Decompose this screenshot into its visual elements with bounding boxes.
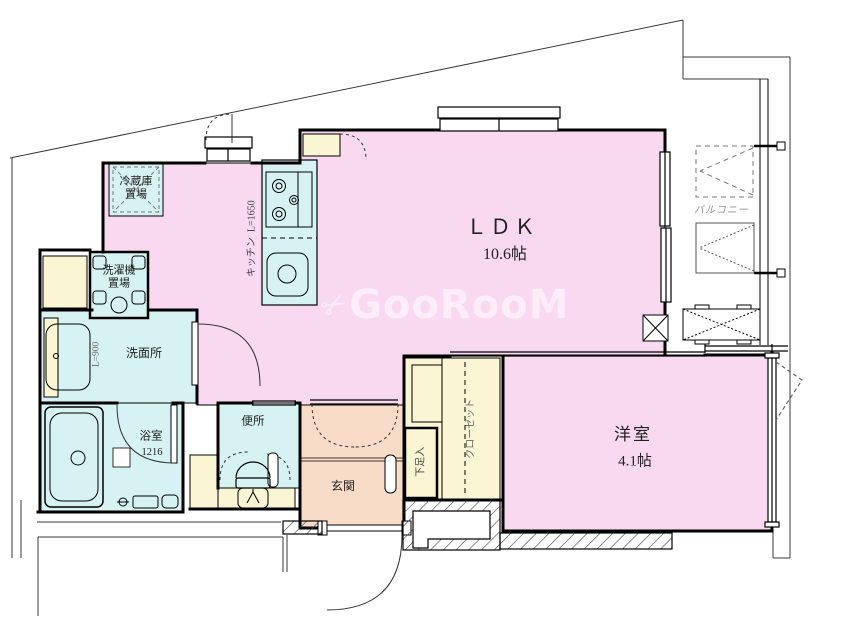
pipe-space-box [303,134,340,156]
closet-label: クローゼット [465,387,477,471]
entrance-label: 玄関 [331,480,355,494]
washer-space-label: 洗濯機 置場 [103,264,136,289]
western-room-label: 洋室 [614,425,652,445]
balcony-partition-box [696,223,754,273]
balcony-hatch-box [696,146,753,197]
western-room-side-window [765,353,802,527]
meter-box [43,256,87,308]
closet-upper-box [412,365,442,422]
vanity-length-label: L=900 [92,329,103,379]
kitchen-top-window [205,137,252,161]
western-room-top-window [705,344,788,353]
shoe-box-label: 下足入 [415,430,427,494]
balcony-railing [754,79,785,345]
entrance-hall-door-leaf [385,455,396,493]
pipe-shaft-icon [643,315,668,341]
ldk-top-window [438,107,560,131]
ac-unit-icon [683,305,760,344]
western-room-size-label: 4.1帖 [618,453,652,470]
floorplan-drawing [0,0,841,622]
toilet-side-counter [190,455,218,509]
kitchen-length-label: キッチン L=1650 [246,179,258,299]
floorplan-canvas: ＬＤＫ 10.6帖 洋室 4.1帖 玄関 洗面所 浴室 1216 便所 冷蔵庫 … [0,0,841,622]
toilet-label: 便所 [242,415,265,428]
balcony-label: バルコニー [694,201,749,216]
ldk-label: ＬＤＫ [466,215,538,239]
bathroom-label: 浴室 [140,430,163,443]
door-swing-arc [327,535,402,610]
bathroom-size-label: 1216 [142,447,163,459]
kitchen-counter [262,160,317,305]
ldk-size-label: 10.6帖 [483,246,527,264]
entrance-door [318,521,411,610]
washroom-label: 洗面所 [126,347,162,361]
refrigerator-space-label: 冷蔵庫 置場 [120,175,153,200]
